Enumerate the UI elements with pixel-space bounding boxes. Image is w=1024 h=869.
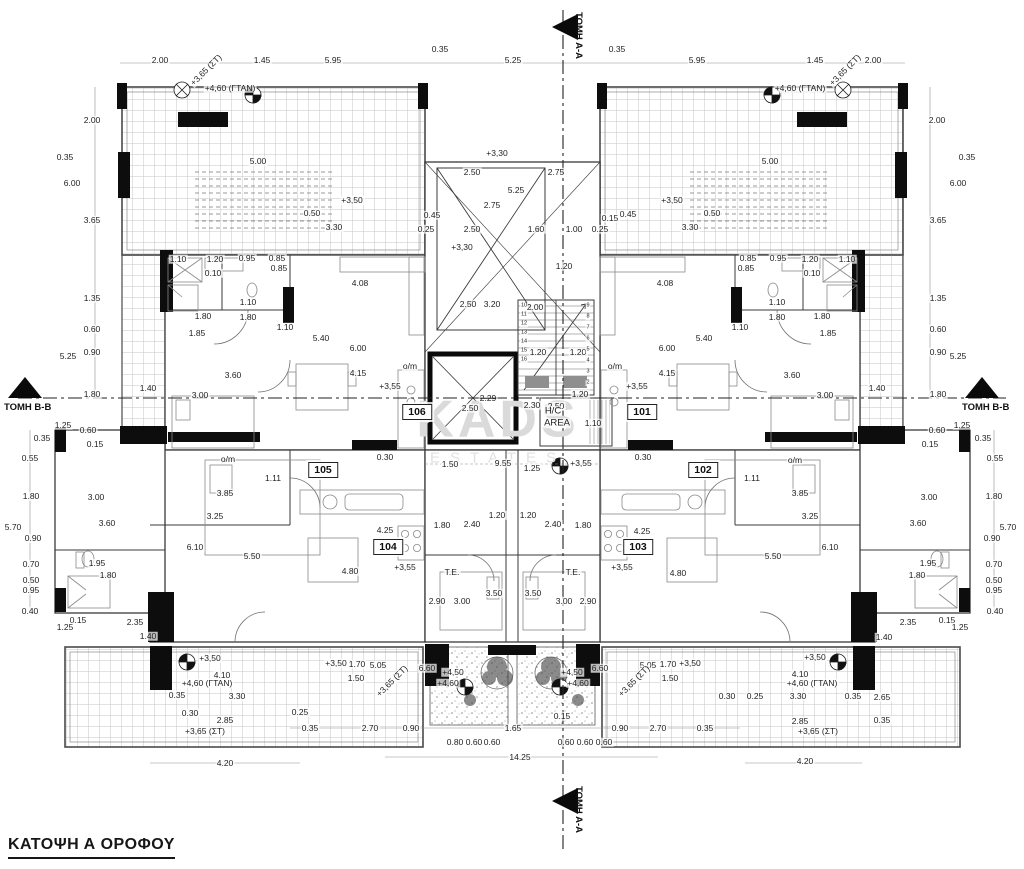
dimension-label: 0.70 — [22, 560, 41, 569]
dimension-label: 5.25 — [949, 352, 968, 361]
dimension-label: 16 — [520, 357, 528, 363]
dimension-label: 5.25 — [504, 56, 523, 65]
dimension-label: 3.60 — [224, 371, 243, 380]
dimension-label: 1.20 — [555, 262, 574, 271]
dimension-label: 2.00 — [83, 116, 102, 125]
dimension-label: 4.25 — [633, 527, 652, 536]
dimension-label: 1.50 — [441, 460, 460, 469]
dimension-label: AREA — [543, 418, 571, 428]
dimension-label: 0.95 — [22, 586, 41, 595]
dimension-label: 5.50 — [243, 552, 262, 561]
dimension-label: 0.10 — [803, 269, 822, 278]
dimension-label: 1.70 — [348, 660, 367, 669]
dimension-label: 0.15 — [921, 440, 940, 449]
dimension-label: +3,55 — [378, 382, 402, 391]
dimension-label: 1.20 — [488, 511, 507, 520]
dimension-label: 1.80 — [433, 521, 452, 530]
dimension-label: 0.35 — [974, 434, 993, 443]
dimension-label: 2.29 — [479, 394, 498, 403]
dimension-label: 6.00 — [349, 344, 368, 353]
dimension-label: 1.70 — [659, 660, 678, 669]
dimension-label: 1.20 — [519, 511, 538, 520]
room-number: 105 — [308, 462, 338, 478]
dimension-label: +3,50 — [198, 654, 222, 663]
dimension-label: +3,65 (ΣΤ) — [184, 727, 226, 736]
dimension-label: 0.35 — [844, 692, 863, 701]
dimension-label: 1.45 — [806, 56, 825, 65]
dimension-label: 0.60 — [929, 325, 948, 334]
dimension-label: 2 — [585, 380, 590, 386]
dimension-label: 1.80 — [908, 571, 927, 580]
dimension-label: 1.80 — [768, 313, 787, 322]
dimension-label: 1.85 — [188, 329, 207, 338]
dimension-label: 1.10 — [276, 323, 295, 332]
dimension-label: 6 — [585, 336, 590, 342]
dimension-label: 1.80 — [985, 492, 1004, 501]
dimension-label: 1.35 — [83, 294, 102, 303]
dimension-label: 1.00 — [565, 225, 584, 234]
dimension-label: 0.15 — [601, 214, 620, 223]
dimension-label: 3.00 — [920, 493, 939, 502]
dimension-label: 10 — [520, 303, 528, 309]
dimension-label: 1.10 — [169, 255, 188, 264]
dimension-label: 5.95 — [688, 56, 707, 65]
dimension-label: 5.70 — [999, 523, 1018, 532]
dimension-label: 1.20 — [529, 348, 548, 357]
dimension-label: 0.35 — [431, 45, 450, 54]
dimension-label: 1.80 — [929, 390, 948, 399]
dimension-label: 1.25 — [953, 421, 972, 430]
dimension-label: 2.00 — [151, 56, 170, 65]
dimension-label: 9 — [585, 303, 590, 309]
dimension-label: 0.35 — [608, 45, 627, 54]
dimension-label: 0.30 — [181, 709, 200, 718]
dimension-label: 3.60 — [98, 519, 117, 528]
dimension-label: 0.85 — [270, 264, 289, 273]
dimension-label: 1.25 — [523, 464, 542, 473]
dimension-label: 3.00 — [453, 597, 472, 606]
dimension-label: 2.35 — [126, 618, 145, 627]
dimension-label: 0.60 — [465, 738, 484, 747]
dimension-label: 2.00 — [864, 56, 883, 65]
dimension-label: 0.60 — [576, 738, 595, 747]
dimension-label: 0.85 — [737, 264, 756, 273]
dimension-label: 0.35 — [168, 691, 187, 700]
dimension-label: 4.25 — [376, 526, 395, 535]
dimension-label: 1.11 — [264, 474, 282, 483]
dimension-label: 2.50 — [463, 225, 482, 234]
dimension-label: 0.50 — [22, 576, 41, 585]
dimension-label: 3.60 — [909, 519, 928, 528]
dimension-label: 2.50 — [459, 300, 478, 309]
dimension-label: 3.50 — [524, 589, 543, 598]
dimension-label: 0.25 — [746, 692, 765, 701]
dimension-label: 1.80 — [194, 312, 213, 321]
dimension-label: 0.60 — [79, 426, 98, 435]
dimension-label: 4.15 — [658, 369, 677, 378]
dimension-label: 0.40 — [986, 607, 1005, 616]
dimension-label: 1.40 — [139, 632, 158, 641]
dimension-label: o/m — [402, 362, 418, 371]
dimension-label: 2.00 — [526, 303, 545, 312]
room-number: 102 — [688, 462, 718, 478]
dimension-label: 4 — [585, 358, 590, 364]
dimension-label: 0.25 — [291, 708, 310, 717]
dimension-label: 2.50 — [461, 404, 480, 413]
dimension-label: 11 — [520, 312, 528, 318]
dimension-label: +3,65 (ΣΤ) — [797, 727, 839, 736]
section-marker-right-icon — [965, 377, 999, 398]
dimension-label: 3.00 — [87, 493, 106, 502]
dimension-label: 2.50 — [463, 168, 482, 177]
section-marker-bottom-label: ΤΟΜΗ Α-Α — [573, 786, 584, 833]
dimension-label: 3.00 — [816, 391, 835, 400]
dimension-label: 1.80 — [239, 313, 258, 322]
dimension-label: +3,50 — [678, 659, 702, 668]
dimension-label: 3.25 — [801, 512, 820, 521]
dimension-label: 3.30 — [681, 223, 700, 232]
dimension-label: 6.10 — [186, 543, 205, 552]
dimension-label: 12 — [520, 321, 528, 327]
dimension-label: 9.55 — [494, 459, 513, 468]
dimension-label: 0.30 — [718, 692, 737, 701]
dimension-label: 1.20 — [206, 255, 225, 264]
dimension-label: 0.50 — [303, 209, 322, 218]
dimension-label: 6.10 — [821, 543, 840, 552]
dimension-label: 2.40 — [544, 520, 563, 529]
dimension-label: 2.65 — [873, 693, 892, 702]
dimension-label: 2.35 — [899, 618, 918, 627]
dimension-label: 1.25 — [951, 623, 970, 632]
dimension-label: 0.10 — [204, 269, 223, 278]
dimension-label: 3 — [585, 369, 590, 375]
dimension-label: 0.95 — [985, 586, 1004, 595]
dimension-label: 1.10 — [768, 298, 787, 307]
dimension-label: 0.90 — [983, 534, 1002, 543]
dimension-label: 0.55 — [986, 454, 1005, 463]
dimension-label: 6.60 — [418, 664, 437, 673]
dimension-label: 3.25 — [206, 512, 225, 521]
dimension-label: T.E. — [444, 568, 461, 577]
dimension-label: 0.30 — [376, 453, 395, 462]
dimension-label: 3.65 — [83, 216, 102, 225]
dimension-label: 1.50 — [661, 674, 680, 683]
dimension-label: +4,60 (ΓΤΑΝ) — [774, 84, 827, 93]
dimension-label: 1.85 — [819, 329, 838, 338]
dimension-label: 1.80 — [813, 312, 832, 321]
dimension-label: 3.85 — [791, 489, 810, 498]
dimension-label: 4.20 — [796, 757, 815, 766]
dimension-label: 15 — [520, 348, 528, 354]
dimension-label: 0.85 — [739, 254, 758, 263]
dimension-label: o/m — [787, 456, 803, 465]
dimension-label: 4.80 — [341, 567, 360, 576]
room-number: 104 — [373, 539, 403, 555]
section-marker-left-icon — [8, 377, 42, 398]
dimension-label: 0.15 — [86, 440, 105, 449]
drawing-title: ΚΑΤΟΨΗ Α ΟΡΟΦΟΥ — [8, 836, 175, 859]
dimension-label: +3,50 — [660, 196, 684, 205]
dimension-label: 5.25 — [59, 352, 78, 361]
dimension-label: +4,60 (ΓΤΑΝ) — [181, 679, 234, 688]
dimension-label: 3.30 — [228, 692, 247, 701]
dimension-label: 0.45 — [619, 210, 638, 219]
dimension-label: 3.30 — [325, 223, 344, 232]
dimension-label: 8 — [585, 314, 590, 320]
dimension-label: 0.95 — [238, 254, 257, 263]
dimension-label: 5.00 — [249, 157, 268, 166]
dimension-label: 0.60 — [595, 738, 614, 747]
dimension-label: 1.25 — [54, 421, 73, 430]
dimension-label: 2.75 — [483, 201, 502, 210]
dimension-label: 0.35 — [33, 434, 52, 443]
dimension-label: 1.35 — [929, 294, 948, 303]
dimension-label: 1.40 — [868, 384, 887, 393]
dimension-label: o/m — [607, 362, 623, 371]
dimension-label: 3.00 — [555, 597, 574, 606]
dimension-label: 4.80 — [669, 569, 688, 578]
dimension-label: T.E. — [565, 568, 582, 577]
dimension-label: 0.90 — [402, 724, 421, 733]
dimension-label: 14.25 — [508, 753, 531, 762]
dimension-label: 0.70 — [985, 560, 1004, 569]
dimension-label: 0.35 — [301, 724, 320, 733]
dimension-label: 0.60 — [83, 325, 102, 334]
dimension-label: 5.25 — [507, 186, 526, 195]
dimension-label: 2.00 — [928, 116, 947, 125]
dimension-label: 1.60 — [527, 225, 546, 234]
room-number: 103 — [623, 539, 653, 555]
dimension-label: 1.10 — [838, 255, 857, 264]
dimension-label: 3.50 — [485, 589, 504, 598]
dimension-label: 1.80 — [22, 492, 41, 501]
dimension-label: +3,55 — [569, 459, 593, 468]
dimension-label: 0.30 — [634, 453, 653, 462]
dimension-label: 1.20 — [571, 390, 590, 399]
dimension-label: 13 — [520, 330, 528, 336]
dimension-label: +4,50 — [441, 668, 465, 677]
dimension-label: 2.75 — [547, 168, 566, 177]
dimension-label: H/C — [544, 406, 562, 416]
dimension-label: 1.10 — [584, 419, 603, 428]
dimension-label: 4.08 — [351, 279, 370, 288]
dimension-label: +3,55 — [393, 563, 417, 572]
dimension-label: 1.80 — [574, 521, 593, 530]
dimension-label: 6.60 — [591, 664, 610, 673]
dimension-label: +3,30 — [450, 243, 474, 252]
dimension-label: 1.40 — [139, 384, 158, 393]
dimension-label: 2.40 — [463, 520, 482, 529]
dimension-label: 5.00 — [761, 157, 780, 166]
dimension-label: 0.35 — [56, 153, 75, 162]
dimension-label: 0.90 — [24, 534, 43, 543]
dimension-label: 0.90 — [929, 348, 948, 357]
dimension-label: +4,60 (ΓΤΑΝ) — [786, 679, 839, 688]
dimension-label: 0.60 — [483, 738, 502, 747]
dimension-label: 6.00 — [949, 179, 968, 188]
dimension-label: 4.20 — [216, 759, 235, 768]
dimension-label: 5.40 — [695, 334, 714, 343]
dimension-label: 0.35 — [696, 724, 715, 733]
dimension-label: +4,60 (ΓΤΑΝ) — [204, 84, 257, 93]
dimension-label: 1.45 — [253, 56, 272, 65]
dimension-label: 0.90 — [83, 348, 102, 357]
dimension-label: 0.40 — [21, 607, 40, 616]
dimension-label: 2.70 — [649, 724, 668, 733]
dimension-label: 1.50 — [347, 674, 366, 683]
dimension-label: 2.90 — [428, 597, 447, 606]
dimension-label: +3,30 — [485, 149, 509, 158]
dimension-label: 7 — [585, 325, 590, 331]
dimension-label: 1.80 — [83, 390, 102, 399]
dimension-label: 0.80 — [446, 738, 465, 747]
section-marker-right-label: ΤΟΜΗ Β-Β — [962, 402, 1009, 413]
dimension-label: 0.60 — [557, 738, 576, 747]
dimension-label: 1.10 — [239, 298, 258, 307]
dimension-label: 0.45 — [423, 211, 442, 220]
dimension-label: +3,55 — [610, 563, 634, 572]
dimension-label: 1.40 — [875, 633, 894, 642]
section-marker-top-label: ΤΟΜΗ Α-Α — [573, 12, 584, 59]
dimension-label: 2.70 — [361, 724, 380, 733]
room-number: 101 — [627, 404, 657, 420]
dimension-label: 3.60 — [783, 371, 802, 380]
dimension-label: 1.11 — [743, 474, 761, 483]
dimension-label: +3,50 — [340, 196, 364, 205]
dimension-label: 1.80 — [99, 571, 118, 580]
dimension-label: 3.30 — [789, 692, 808, 701]
dimension-label: 0.25 — [417, 225, 436, 234]
dimension-label: 4.15 — [349, 369, 368, 378]
dimension-label: 1.10 — [731, 323, 750, 332]
dimension-label: 1.95 — [919, 559, 938, 568]
dimension-label: 1.20 — [801, 255, 820, 264]
dimension-label: 5 — [585, 347, 590, 353]
dimension-label: +4,60 — [436, 679, 460, 688]
dimension-label: 0.25 — [591, 225, 610, 234]
dimension-label: 0.85 — [268, 254, 287, 263]
dimension-label: 3.20 — [483, 300, 502, 309]
dimension-label: +3,50 — [803, 653, 827, 662]
room-number: 106 — [402, 404, 432, 420]
dimension-label: 2.90 — [579, 597, 598, 606]
dimension-label: 0.15 — [553, 712, 572, 721]
dimension-label: 0.95 — [769, 254, 788, 263]
dimension-label: 5.50 — [764, 552, 783, 561]
dimension-label: 6.00 — [63, 179, 82, 188]
section-marker-left-label: ΤΟΜΗ Β-Β — [4, 402, 51, 413]
dimension-label: 2.85 — [791, 717, 810, 726]
dimension-label: 0.50 — [703, 209, 722, 218]
dimension-label: 0.90 — [611, 724, 630, 733]
dimension-label: +3,55 — [625, 382, 649, 391]
dimension-label: 2.30 — [523, 401, 542, 410]
dimension-label: 1.65 — [504, 724, 523, 733]
dimension-label: 3.00 — [191, 391, 210, 400]
dimension-label: o/m — [220, 455, 236, 464]
dimension-label: 5.40 — [312, 334, 331, 343]
dimension-label: 3.85 — [216, 489, 235, 498]
dimension-label: 1.95 — [88, 559, 107, 568]
dimension-label: 1.25 — [56, 623, 75, 632]
dimension-label: 3.65 — [929, 216, 948, 225]
dimension-label: 6.00 — [658, 344, 677, 353]
dimension-label: 0.55 — [21, 454, 40, 463]
dimension-label: 2.85 — [216, 716, 235, 725]
dimension-label: 5.95 — [324, 56, 343, 65]
dimension-label: +4,50 — [560, 668, 584, 677]
floor-plan-canvas: KADS ESTATES 2.00+3,65 (ΣΤ)1.455.950.355… — [0, 0, 1024, 869]
dimension-label: 5.05 — [369, 661, 388, 670]
dimension-label: +4,60 — [566, 679, 590, 688]
dimension-label: 5.70 — [4, 523, 23, 532]
dimension-label: +3,50 — [324, 659, 348, 668]
dimension-label: 0.35 — [958, 153, 977, 162]
dimension-label: 0.35 — [873, 716, 892, 725]
dimension-label: 0.60 — [928, 426, 947, 435]
dimension-label: 0.50 — [985, 576, 1004, 585]
dimension-label: 14 — [520, 339, 528, 345]
floor-plan-svg — [0, 0, 1024, 869]
dimension-label: 4.08 — [656, 279, 675, 288]
